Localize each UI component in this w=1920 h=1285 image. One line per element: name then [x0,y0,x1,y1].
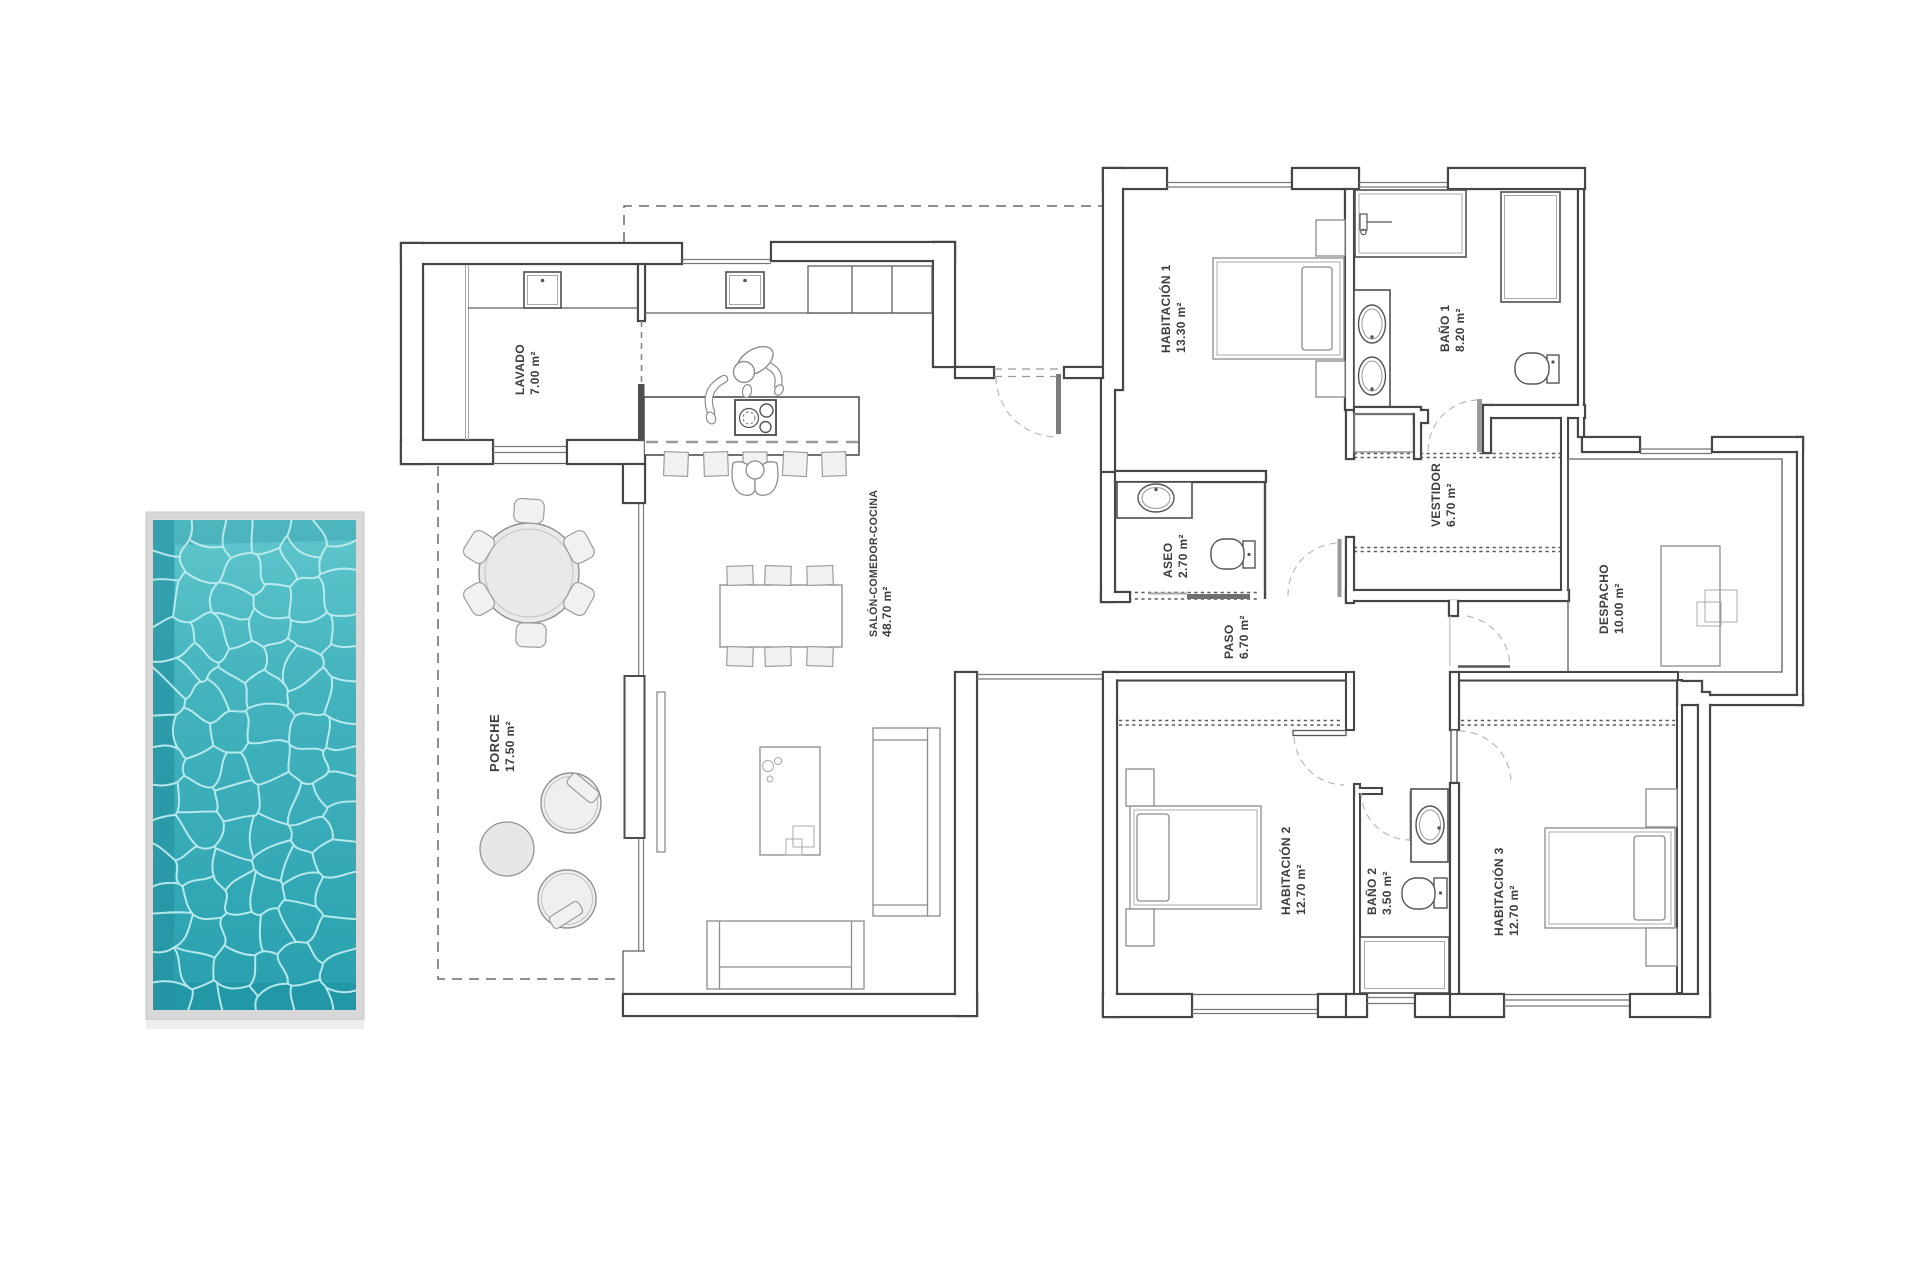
svg-text:VESTIDOR: VESTIDOR [1429,463,1443,527]
svg-text:3.50 m²: 3.50 m² [1380,871,1394,915]
svg-text:DESPACHO: DESPACHO [1597,564,1611,634]
svg-text:6.70 m²: 6.70 m² [1237,615,1251,659]
svg-text:HABITACIÓN 2: HABITACIÓN 2 [1278,826,1293,915]
svg-text:BAÑO 2: BAÑO 2 [1364,868,1379,915]
svg-text:PORCHE: PORCHE [487,714,502,772]
svg-text:SALÓN-COMEDOR-COCINA: SALÓN-COMEDOR-COCINA [867,490,880,637]
svg-text:7.00 m²: 7.00 m² [528,351,542,395]
svg-text:8.20 m²: 8.20 m² [1453,308,1467,352]
svg-text:HABITACIÓN 1: HABITACIÓN 1 [1158,264,1173,353]
svg-text:BAÑO 1: BAÑO 1 [1437,305,1452,352]
svg-text:12.70 m²: 12.70 m² [1507,885,1521,936]
svg-text:PASO: PASO [1222,624,1236,659]
svg-text:10.00 m²: 10.00 m² [1612,583,1626,634]
svg-text:13.30 m²: 13.30 m² [1174,302,1188,353]
svg-text:12.70 m²: 12.70 m² [1294,864,1308,915]
svg-text:ASEO: ASEO [1161,543,1175,578]
svg-text:HABITACIÓN 3: HABITACIÓN 3 [1491,847,1506,936]
svg-text:48.70 m²: 48.70 m² [880,586,894,637]
svg-text:6.70 m²: 6.70 m² [1444,483,1458,527]
svg-text:LAVADO: LAVADO [513,344,527,395]
svg-text:2.70 m²: 2.70 m² [1176,534,1190,578]
svg-text:17.50 m²: 17.50 m² [503,721,517,772]
